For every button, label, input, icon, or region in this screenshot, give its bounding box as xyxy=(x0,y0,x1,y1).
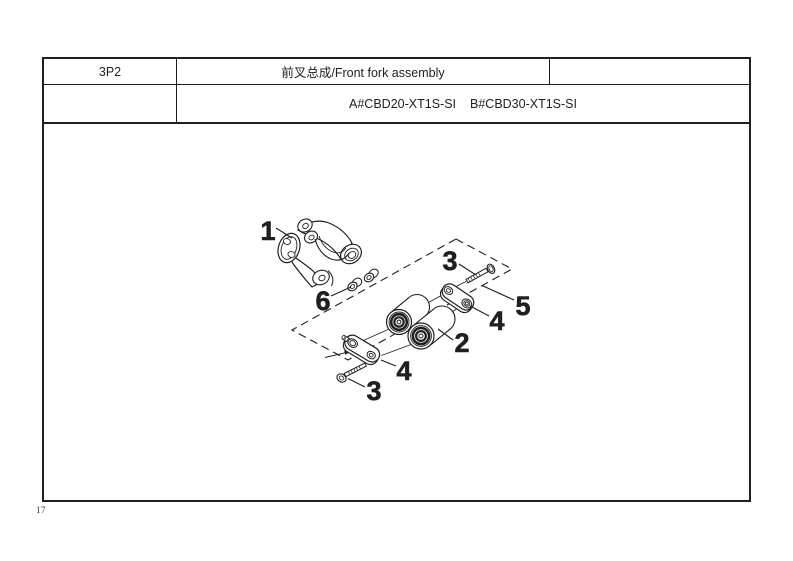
title-cell: 前叉总成/Front fork assembly xyxy=(177,59,550,85)
callout-3-bottom: 3 xyxy=(366,376,381,406)
model-code-a: A#CBD20-XT1S-SI xyxy=(349,97,456,111)
part-6-bushings xyxy=(346,267,380,292)
drawing-frame: 3P2 前叉总成/Front fork assembly A#CBD20-XT1… xyxy=(42,57,751,502)
callout-6: 6 xyxy=(315,286,330,316)
leader-lines xyxy=(276,228,514,387)
part-code-cell: 3P2 xyxy=(44,59,177,85)
callout-1: 1 xyxy=(260,216,275,246)
callout-5: 5 xyxy=(515,291,530,321)
callout-4-right: 4 xyxy=(489,306,504,336)
model-code-b: B#CBD30-XT1S-SI xyxy=(470,97,577,111)
part-2-rollers xyxy=(387,295,456,350)
part-code: 3P2 xyxy=(99,65,121,79)
callout-3-top: 3 xyxy=(442,246,457,276)
model-codes-cell: A#CBD20-XT1S-SI B#CBD30-XT1S-SI xyxy=(177,85,749,124)
callout-4-bottom: 4 xyxy=(396,356,411,386)
callout-2: 2 xyxy=(454,328,469,358)
exploded-view-diagram: 1 2 3 3 4 4 5 6 xyxy=(44,124,749,498)
catalog-page: { "header": { "code": "3P2", "title": "前… xyxy=(0,0,793,561)
part-4-plate-bottom xyxy=(337,330,383,367)
empty-code-cell xyxy=(44,85,177,124)
empty-header-cell xyxy=(550,59,749,85)
page-number: 17 xyxy=(36,505,46,515)
part-3-bolt-bottom xyxy=(335,363,366,384)
diagram-canvas: 1 2 3 3 4 4 5 6 xyxy=(44,124,749,500)
assembly-title: 前叉总成/Front fork assembly xyxy=(281,62,444,81)
part-1-fork-bracket xyxy=(274,216,365,287)
part-3-bolt-top xyxy=(466,263,496,283)
